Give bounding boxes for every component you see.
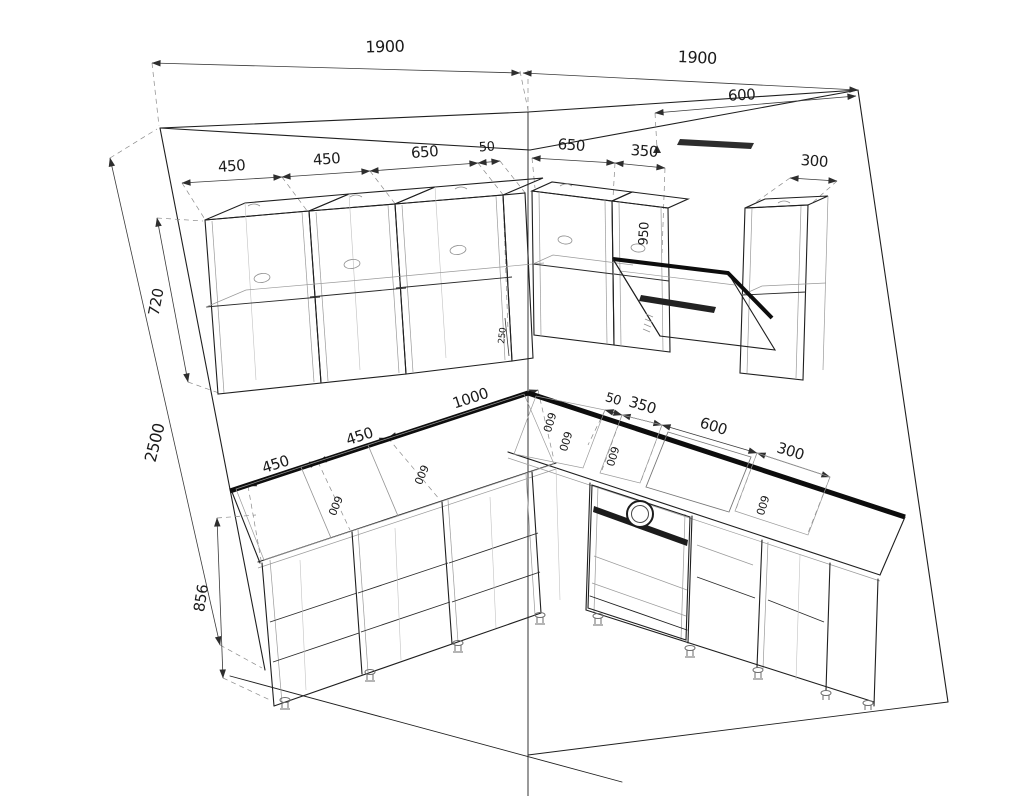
dim-label-600-24: 600 xyxy=(540,411,558,434)
dim-label-1900-0: 1900 xyxy=(365,36,405,56)
dim-label-350-19: 350 xyxy=(627,393,659,418)
dim-label-450-4: 450 xyxy=(312,149,341,169)
dim-label-600-26: 600 xyxy=(603,445,621,468)
base-cabinets-left xyxy=(262,472,541,706)
dim-label-720-10: 720 xyxy=(145,287,168,317)
dim-label-600-25: 600 xyxy=(556,430,574,453)
dim-label-600-2: 600 xyxy=(728,85,756,104)
dim-label-950-13: 950 xyxy=(636,222,652,246)
dim-label-350-8: 350 xyxy=(630,141,659,161)
upper-cabinets-left xyxy=(205,178,544,394)
upper-cabinets-right xyxy=(532,182,828,380)
dim-label-856-12: 856 xyxy=(190,583,212,613)
dim-label-450-3: 450 xyxy=(217,156,246,176)
ceiling-vent xyxy=(677,139,754,149)
dim-label-600-20: 600 xyxy=(698,414,730,439)
dim-label-300-9: 300 xyxy=(800,151,829,171)
dim-label-50-6: 50 xyxy=(478,139,495,155)
dim-label-600-23: 600 xyxy=(411,463,431,487)
cabinet-feet xyxy=(280,613,873,711)
hood-handle xyxy=(639,295,716,313)
kitchen-technical-drawing: 1900190060045045065050650350300720250085… xyxy=(0,0,1012,796)
dim-label-650-5: 650 xyxy=(410,142,439,162)
range-hood xyxy=(613,259,775,350)
countertop xyxy=(230,393,905,600)
drawing-canvas: 1900190060045045065050650350300720250085… xyxy=(0,0,1012,796)
dim-label-1900-1: 1900 xyxy=(677,47,717,68)
hob xyxy=(646,432,751,512)
dim-label-50-18: 50 xyxy=(603,390,623,409)
dim-label-650-7: 650 xyxy=(557,135,586,155)
dim-label-250-14: 250 xyxy=(497,327,509,345)
dim-label-2500-11: 2500 xyxy=(141,421,169,464)
room-structure xyxy=(160,90,948,796)
dim-label-600-27: 600 xyxy=(753,494,771,517)
dimension-labels: 1900190060045045065050650350300720250085… xyxy=(141,36,829,613)
oven-knob xyxy=(627,501,653,527)
